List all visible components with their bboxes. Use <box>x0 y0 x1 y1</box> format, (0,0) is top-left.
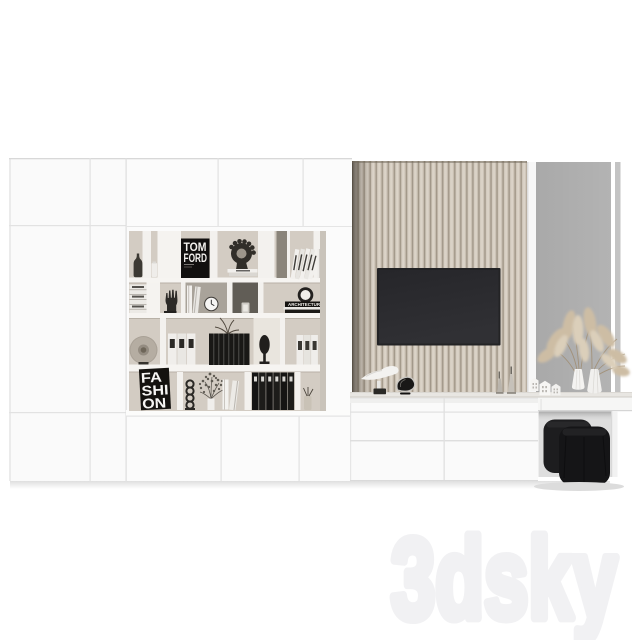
svg-text:3dsky: 3dsky <box>391 515 617 640</box>
svg-text:ARCHITECTURE: ARCHITECTURE <box>288 302 323 307</box>
svg-text:ON: ON <box>142 394 167 411</box>
svg-text:FORD: FORD <box>184 253 208 265</box>
